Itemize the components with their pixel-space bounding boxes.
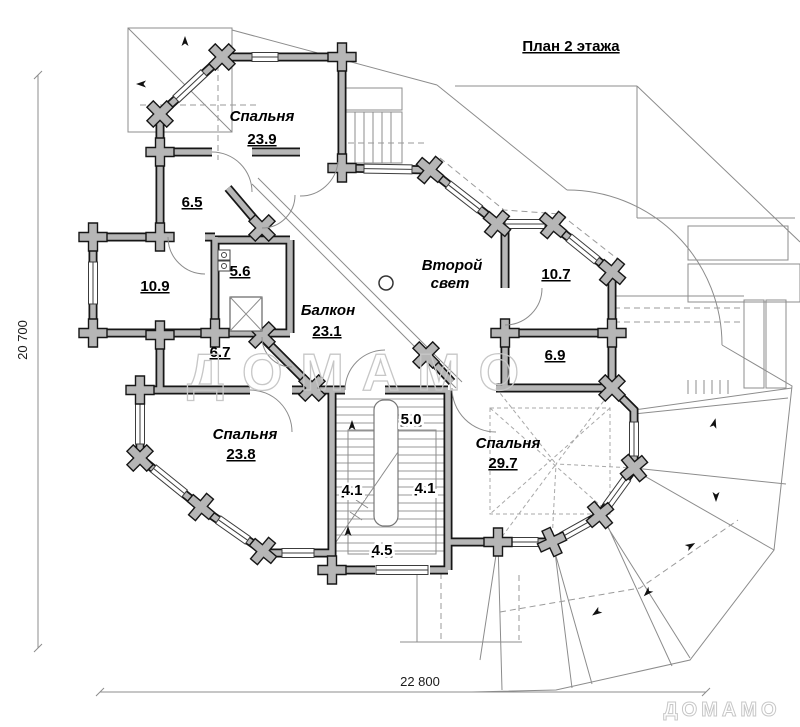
floor-plan-page: 20 700 22 800 План 2 этажа Спальня 23.9 …	[0, 0, 800, 727]
room-label-bedroom-1-name: Спальня	[230, 108, 295, 125]
floor-plan-drawing: 20 700 22 800 План 2 этажа Спальня 23.9 …	[0, 0, 800, 727]
room-label-balcony-name: Балкон	[301, 302, 355, 319]
room-label-stair-right-area: 4.1	[415, 480, 436, 497]
room-label-room-10-9-area: 10.9	[140, 278, 169, 295]
room-label-balcony-area: 23.1	[312, 323, 341, 340]
room-label-room-10-7-area: 10.7	[541, 266, 570, 283]
column	[379, 276, 393, 290]
room-label-room-6-9-area: 6.9	[545, 347, 566, 364]
room-label-bedroom-2-area: 23.8	[226, 446, 255, 463]
room-label-void-line2: свет	[431, 275, 470, 292]
page-title: План 2 этажа	[522, 38, 620, 55]
room-label-hall-area: 6.5	[182, 194, 203, 211]
room-label-void-line1: Второй	[422, 257, 483, 274]
room-label-stair-top-area: 5.0	[401, 411, 422, 428]
room-label-room-5-6-area: 5.6	[230, 263, 251, 280]
dimension-width-label: 22 800	[400, 674, 440, 689]
room-label-stair-bottom-area: 4.5	[372, 542, 393, 559]
room-label-bedroom-1-area: 23.9	[247, 131, 276, 148]
room-label-bedroom-3-area: 29.7	[488, 455, 517, 472]
room-label-stair-left-area: 4.1	[342, 482, 363, 499]
stair-direction-arrow	[349, 420, 356, 430]
dimension-height-label: 20 700	[15, 320, 30, 360]
stair-newel	[374, 400, 398, 526]
watermark-center: ДОМАМО	[187, 344, 537, 402]
room-label-bedroom-3-name: Спальня	[476, 435, 541, 452]
staircase	[336, 399, 444, 554]
wall-junction-crosses	[79, 37, 654, 584]
room-label-bedroom-2-name: Спальня	[213, 426, 278, 443]
watermark-corner: ДОМАМО	[663, 699, 780, 721]
